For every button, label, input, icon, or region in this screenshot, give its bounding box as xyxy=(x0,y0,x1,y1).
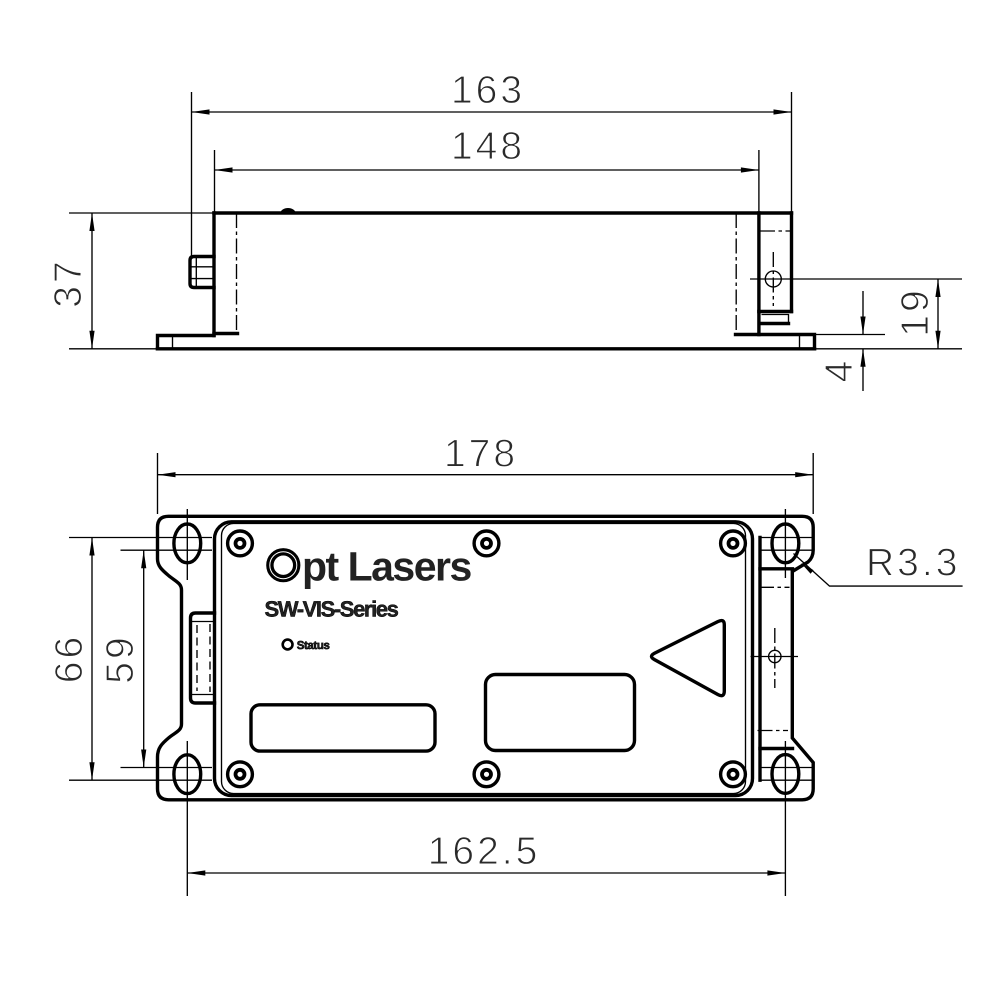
svg-text:SW-VIS-Series: SW-VIS-Series xyxy=(265,596,399,621)
svg-text:Status: Status xyxy=(297,640,330,652)
svg-text:163: 163 xyxy=(451,69,525,112)
svg-text:R3.3: R3.3 xyxy=(866,542,960,585)
svg-text:162.5: 162.5 xyxy=(428,830,541,873)
svg-text:37: 37 xyxy=(47,258,90,307)
svg-text:pt Lasers: pt Lasers xyxy=(302,544,471,590)
svg-text:148: 148 xyxy=(451,125,525,168)
svg-text:4: 4 xyxy=(818,358,861,383)
svg-text:19: 19 xyxy=(894,287,937,336)
svg-text:178: 178 xyxy=(444,433,518,476)
svg-text:59: 59 xyxy=(99,634,142,683)
svg-text:66: 66 xyxy=(48,634,91,683)
